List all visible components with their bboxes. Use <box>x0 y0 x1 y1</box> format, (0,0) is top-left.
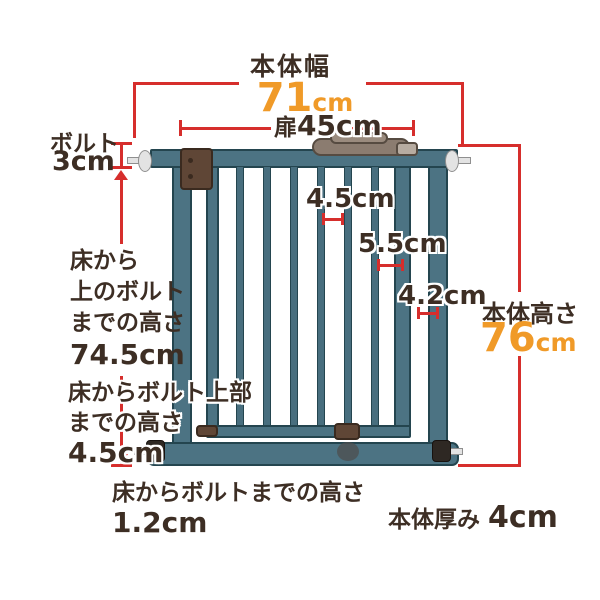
pressure-bolt-cap-top-left <box>138 150 152 172</box>
door-foot-latch-right <box>334 423 360 440</box>
dim-bargap-tick-right <box>341 213 344 225</box>
pressure-bolt-stem-top-right <box>457 157 471 164</box>
door-handle-button <box>396 142 418 156</box>
door-bar <box>290 166 298 430</box>
dim-width-line-left <box>133 82 239 85</box>
bolt-top-height-value: 4.5cm <box>68 438 252 468</box>
pressure-bolt-cap-top-right <box>445 150 459 172</box>
dim-bargap-line <box>323 218 343 221</box>
floor-bolt-height-value: 1.2cm <box>112 508 365 538</box>
dim-height-top-line <box>458 144 521 147</box>
body-depth-text: 本体厚み <box>388 507 480 533</box>
dim-height-line-lower <box>518 356 521 466</box>
dim-door-tick-right <box>412 120 415 136</box>
dim-height-line-upper <box>518 144 521 292</box>
frame-gap-label: 4.2cm <box>398 281 487 311</box>
product-dimension-diagram: 本体幅 71cm 扉45cm ボルト 3cm 床から 上のボルト までの高さ 7… <box>0 0 600 600</box>
bar-gap-label: 4.5cm <box>306 184 395 214</box>
dim-floor-height-line-upper <box>120 180 123 244</box>
door-bar <box>263 166 271 430</box>
door-hinge <box>180 148 213 190</box>
dim-framegap-line <box>418 312 438 315</box>
body-height-number: 76 <box>480 315 536 361</box>
floor-bolt-height-text: 床からボルトまでの高さ <box>112 478 365 508</box>
body-height-value: 76cm <box>480 318 577 358</box>
dim-height-bottom-line <box>458 464 521 467</box>
bolt-top-height-label: 床からボルト上部 までの高さ 4.5cm <box>68 378 252 468</box>
bolt-top-height-line1: 床からボルト上部 <box>68 378 252 408</box>
dim-doorgap-tick-right <box>401 259 404 271</box>
body-depth-label: 本体厚み 4cm <box>388 500 558 535</box>
bolt-top-height-line2: までの高さ <box>68 408 252 438</box>
hinge-screw-icon <box>188 174 193 179</box>
upper-bolt-height-line2: 上のボルト <box>70 277 185 308</box>
dim-width-line-right <box>366 82 464 85</box>
dim-doorgap-line <box>378 264 403 267</box>
door-gap-label: 5.5cm <box>358 229 447 259</box>
door-width-label: 扉45cm <box>274 108 382 142</box>
dim-width-drop-right <box>461 82 464 145</box>
pressure-bolt-stem-bottom-right <box>449 448 463 455</box>
dim-width-drop-left <box>133 82 136 138</box>
body-height-unit: cm <box>536 328 577 357</box>
upper-bolt-height-value: 74.5cm <box>70 339 185 370</box>
door-width-value: 45cm <box>297 109 382 142</box>
dim-door-line-left <box>181 127 271 130</box>
dim-up-arrow-icon <box>114 170 128 180</box>
floor-bolt-height-label: 床からボルトまでの高さ 1.2cm <box>112 478 365 538</box>
bolt-value: 3cm <box>52 146 115 177</box>
hinge-screw-icon <box>188 158 193 163</box>
upper-bolt-height-line1: 床から <box>70 246 185 277</box>
upper-bolt-height-label: 床から 上のボルト までの高さ 74.5cm <box>70 246 185 370</box>
body-depth-value: 4cm <box>488 500 558 535</box>
pressure-bolt-knob-bottom-right <box>432 440 451 462</box>
dim-bolt-segment <box>120 142 123 168</box>
door-foot-pad <box>337 442 359 461</box>
door-width-prefix: 扉 <box>274 115 297 141</box>
upper-bolt-height-line3: までの高さ <box>70 308 185 339</box>
